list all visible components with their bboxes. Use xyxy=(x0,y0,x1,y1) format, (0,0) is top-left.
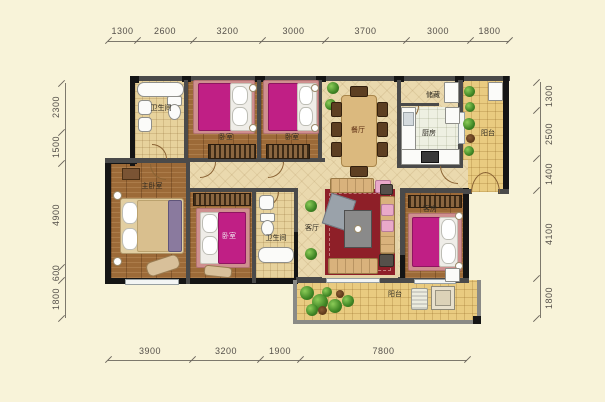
dim-line-bottom xyxy=(108,360,467,361)
bed1-wardrobe xyxy=(208,144,256,159)
label-bedroom3: 卧室 xyxy=(222,231,236,241)
kitchen-sink xyxy=(403,112,414,126)
dim-tick xyxy=(533,79,540,86)
bath-mid-sink xyxy=(259,195,274,210)
dining-chair xyxy=(331,142,342,157)
dining-chair xyxy=(331,122,342,137)
wall-guest-right xyxy=(463,188,469,283)
guest-pillow xyxy=(441,219,456,240)
dim-bottom-3: 1900 xyxy=(260,346,300,356)
dim-tick xyxy=(506,37,513,44)
bed1-lamp xyxy=(249,124,257,132)
bed3-pillow xyxy=(202,236,218,255)
dim-tick xyxy=(58,129,65,136)
dim-left-5: 1800 xyxy=(51,288,61,310)
balcony-right-plant xyxy=(463,118,475,130)
wall-master-left xyxy=(105,158,111,284)
wall-bed1-bed2 xyxy=(257,80,261,160)
dim-right-2: 2500 xyxy=(544,123,554,145)
dim-tick xyxy=(58,315,65,322)
dining-chair xyxy=(377,142,388,157)
kitchen-cooktop xyxy=(421,151,439,163)
dim-tick xyxy=(533,315,540,322)
master-lamp xyxy=(113,257,122,266)
balcony-bottom-wall-bottom xyxy=(293,320,481,324)
balcony-appliance-box xyxy=(431,286,455,310)
balcony-bottom-wall-left xyxy=(293,280,297,324)
label-bath-mid: 卫生间 xyxy=(266,233,287,243)
wall-guest-left xyxy=(400,188,405,258)
sofa-top xyxy=(330,178,374,193)
dining-chair xyxy=(350,166,368,177)
dim-right-5: 1800 xyxy=(544,287,554,309)
dining-plant xyxy=(327,82,339,94)
balcony-right-plant xyxy=(464,146,474,156)
master-blanket xyxy=(137,200,170,252)
dim-tick xyxy=(533,107,540,114)
bath-mid-tub xyxy=(258,247,294,263)
dim-tick xyxy=(464,356,471,363)
balcony-right-table xyxy=(488,82,503,101)
dim-top-4: 3000 xyxy=(262,26,325,36)
guest-lamp xyxy=(455,212,463,220)
label-bath-top: 卫生间 xyxy=(151,103,172,113)
wall-bath-bed1 xyxy=(184,80,188,162)
label-bedroom2: 卧室 xyxy=(285,132,299,142)
bed2-lamp xyxy=(311,124,319,132)
dim-top-3: 3200 xyxy=(193,26,262,36)
guest-bed-blanket xyxy=(412,217,441,267)
sofa-bottom xyxy=(328,258,378,274)
wall-bed3-bath xyxy=(252,188,256,283)
balcony-right-shrub xyxy=(466,134,475,143)
label-storage: 储藏 xyxy=(426,90,440,100)
dim-left-3: 4900 xyxy=(51,204,61,226)
dim-tick xyxy=(58,160,65,167)
dim-top-2: 2600 xyxy=(137,26,193,36)
side-table xyxy=(379,254,394,267)
living-plant xyxy=(305,248,317,260)
dim-bottom-2: 3200 xyxy=(192,346,260,356)
dining-chair xyxy=(331,102,342,117)
balcony-right-plant xyxy=(465,102,475,112)
living-balcony-slider xyxy=(326,278,380,283)
label-balcony-bottom: 阳台 xyxy=(388,289,402,299)
master-pillow xyxy=(122,202,138,224)
wall-bath-top-left xyxy=(130,76,135,166)
balcony-bottom-shrub xyxy=(336,290,344,298)
label-master: 主卧室 xyxy=(142,181,163,191)
master-lamp xyxy=(113,191,122,200)
dim-top-7: 1800 xyxy=(470,26,509,36)
bed2-pillow xyxy=(299,107,313,126)
dim-tick xyxy=(58,80,65,87)
balcony-appliance-ribbed xyxy=(411,288,428,310)
dim-top-1: 1300 xyxy=(108,26,137,36)
dim-tick xyxy=(533,187,540,194)
label-living: 客厅 xyxy=(305,223,319,233)
wall-corner xyxy=(473,316,481,324)
balcony-bottom-plant xyxy=(306,304,318,316)
dim-bottom-1: 3900 xyxy=(108,346,192,356)
master-dresser xyxy=(122,168,140,180)
dim-top-6: 3000 xyxy=(406,26,470,36)
dim-left-2: 1500 xyxy=(51,136,61,158)
label-balcony-right: 阳台 xyxy=(481,128,495,138)
wall-bedroom3-top xyxy=(190,188,256,192)
dim-tick xyxy=(533,155,540,162)
side-table xyxy=(380,184,393,195)
dining-chair xyxy=(350,86,368,97)
dim-bottom-4: 7800 xyxy=(300,346,467,356)
dim-line-top xyxy=(108,41,509,42)
wall-master-top xyxy=(105,158,190,163)
cushion-right xyxy=(381,204,394,216)
dim-line-right xyxy=(540,82,541,318)
balcony-bottom-plant xyxy=(322,287,332,297)
bed3-pillow xyxy=(202,214,218,233)
label-dining: 餐厅 xyxy=(351,125,365,135)
label-kitchen: 厨房 xyxy=(422,128,436,138)
balcony-right-plant xyxy=(464,86,475,97)
bed1-pillow xyxy=(232,86,248,105)
guest-pillow xyxy=(441,243,456,264)
cushion-right xyxy=(381,220,394,232)
coffee-table-decor xyxy=(354,225,362,233)
dim-top-5: 3700 xyxy=(325,26,406,36)
dim-right-4: 4100 xyxy=(544,223,554,245)
dim-line-left xyxy=(65,83,66,318)
guest-cabinet xyxy=(445,268,460,282)
kitchen-fridge xyxy=(445,107,460,124)
dim-tick xyxy=(533,275,540,282)
dim-right-3: 1400 xyxy=(544,163,554,185)
balcony-bottom-plant xyxy=(328,299,342,313)
wall-bath-mid-right-lower xyxy=(294,232,298,283)
master-throw xyxy=(168,200,182,252)
wall-right-balcony xyxy=(503,76,509,194)
bed2-lamp xyxy=(311,84,319,92)
living-plant xyxy=(305,200,317,212)
bed3-wardrobe xyxy=(193,193,251,206)
bathtub xyxy=(137,82,184,97)
label-bedroom1: 卧室 xyxy=(219,132,233,142)
sink xyxy=(138,117,152,132)
bed1-lamp xyxy=(249,84,257,92)
bed1-blanket xyxy=(198,83,232,131)
balcony-bottom-plant xyxy=(342,295,354,307)
bed1-pillow xyxy=(232,107,248,126)
master-window xyxy=(125,279,179,285)
appliance-inner xyxy=(435,290,451,306)
storage-cabinet xyxy=(444,82,459,103)
dim-left-1: 2300 xyxy=(51,96,61,118)
label-guest: 客房 xyxy=(423,204,437,214)
master-pillow xyxy=(122,228,138,250)
bed2-wardrobe xyxy=(266,144,310,159)
wall-master-right xyxy=(186,158,190,284)
bed2-blanket xyxy=(268,83,299,131)
dining-chair xyxy=(377,102,388,117)
dim-right-1: 1300 xyxy=(544,85,554,107)
dim-left-4: 600 xyxy=(51,265,61,282)
balcony-bottom-shrub xyxy=(318,306,327,315)
floor-plan-page: { "plan_title": "apartment-floor-plan", … xyxy=(0,0,605,402)
dining-chair xyxy=(377,122,388,137)
